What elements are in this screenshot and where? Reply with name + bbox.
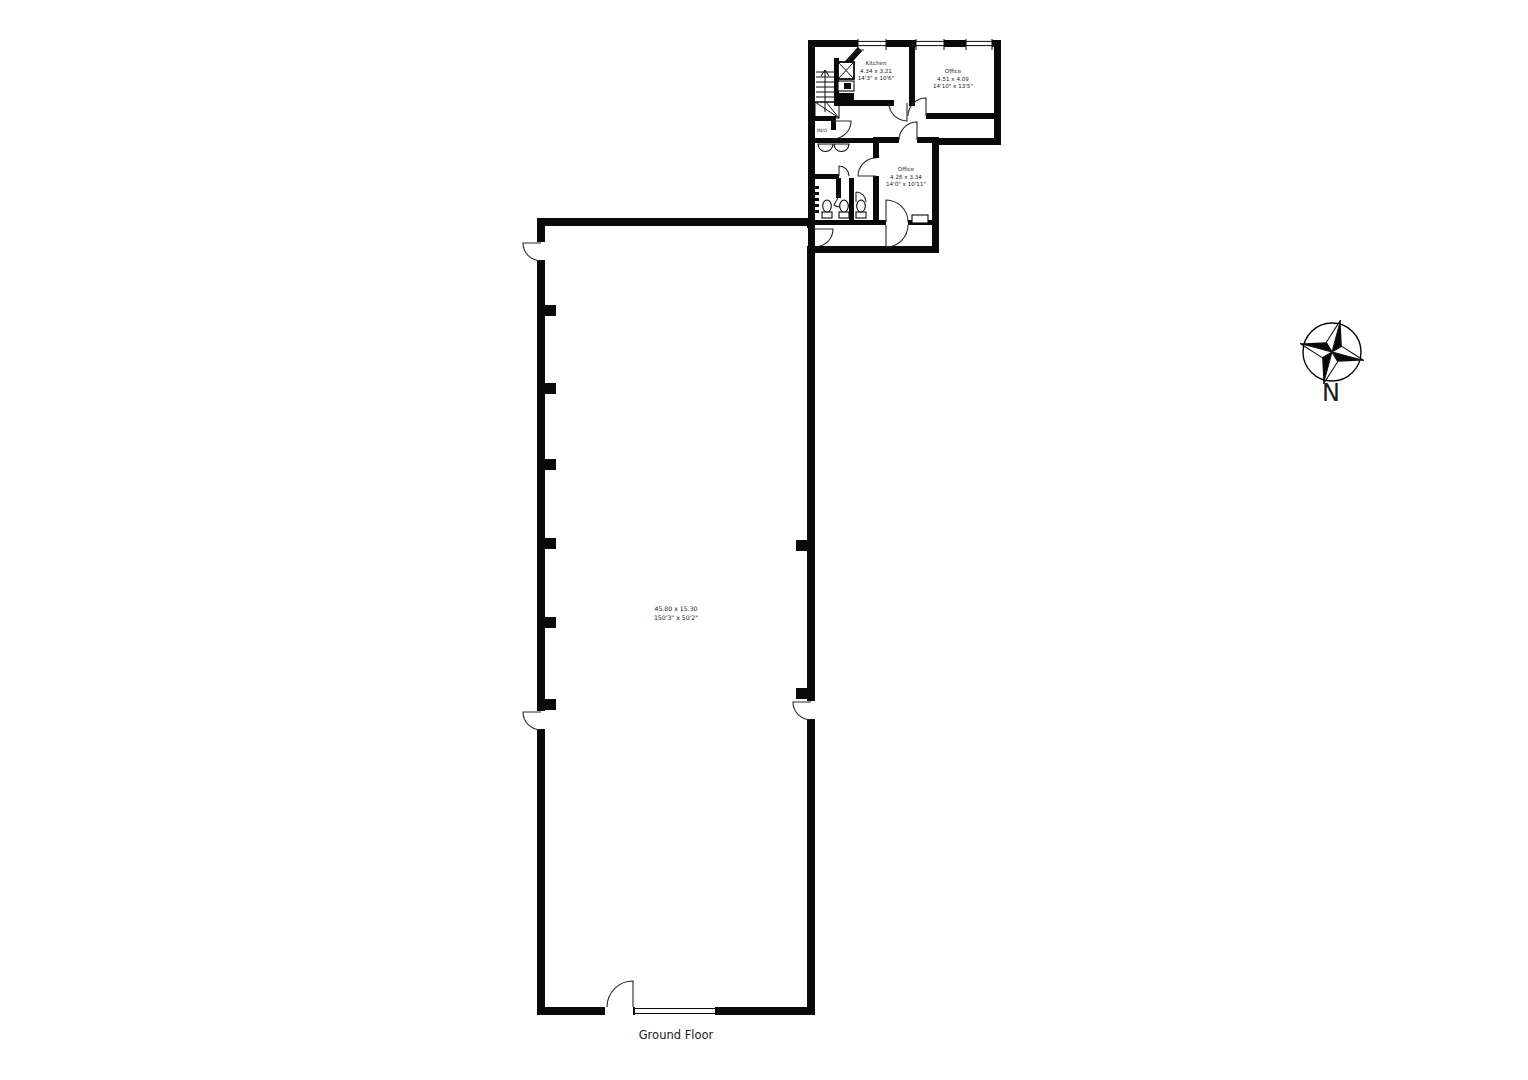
svg-text:Kitchen: Kitchen: [865, 60, 886, 66]
door-openings: [536, 228, 816, 1015]
door-arc: [899, 122, 917, 140]
kitchen-units: [838, 81, 854, 102]
door-arc: [815, 229, 833, 247]
floor-plan: Kitchen 4.34 x 3.21 14'3" x 10'6" Office…: [0, 0, 1528, 1080]
office-front-label: Office 4.26 x 3.34 14'0" x 10'11": [886, 166, 926, 187]
office-rear-label: Office 4.51 x 4.09 14'10" x 13'5": [933, 68, 973, 89]
toilet: [822, 212, 832, 218]
svg-text:14'3" x 10'6": 14'3" x 10'6": [858, 75, 895, 81]
main-hall-label: 45.80 x 15.30 150'3" x 50'2": [654, 605, 698, 621]
svg-text:150'3" x 50'2": 150'3" x 50'2": [654, 614, 698, 621]
svg-text:14'0" x 10'11": 14'0" x 10'11": [886, 181, 926, 187]
lobby-label: IN/O: [817, 128, 828, 133]
floor-title: Ground Floor: [639, 1028, 714, 1042]
svg-text:4.34 x 3.21: 4.34 x 3.21: [860, 68, 892, 74]
toilet: [839, 212, 849, 218]
front-window: [635, 1007, 715, 1015]
door-arc: [839, 166, 849, 176]
svg-text:4.51 x 4.09: 4.51 x 4.09: [937, 76, 969, 82]
door-arc: [607, 981, 633, 1007]
svg-text:14'10" x 13'5": 14'10" x 13'5": [933, 83, 973, 89]
door-arc: [886, 200, 908, 222]
rear-windows: [858, 39, 992, 50]
corridor-window: [912, 215, 928, 223]
compass-rose: N: [1292, 312, 1373, 407]
toilets: [822, 200, 866, 218]
wash-basins: [818, 144, 849, 152]
toilet: [856, 212, 866, 218]
wall-piers: [545, 305, 807, 710]
svg-text:4.26 x 3.34: 4.26 x 3.34: [890, 174, 922, 180]
basin: [834, 144, 849, 152]
svg-text:Office: Office: [898, 166, 915, 172]
service-shaft: [838, 62, 854, 79]
door-arc: [886, 225, 908, 247]
floorplan-page: Kitchen 4.34 x 3.21 14'3" x 10'6" Office…: [0, 0, 1528, 1080]
north-label: N: [1322, 379, 1340, 407]
svg-text:Office: Office: [945, 68, 962, 74]
basin: [818, 144, 833, 152]
svg-text:45.80 x 15.30: 45.80 x 15.30: [654, 605, 697, 612]
door-arc: [858, 158, 876, 176]
kitchen-label: Kitchen 4.34 x 3.21 14'3" x 10'6": [858, 60, 895, 81]
